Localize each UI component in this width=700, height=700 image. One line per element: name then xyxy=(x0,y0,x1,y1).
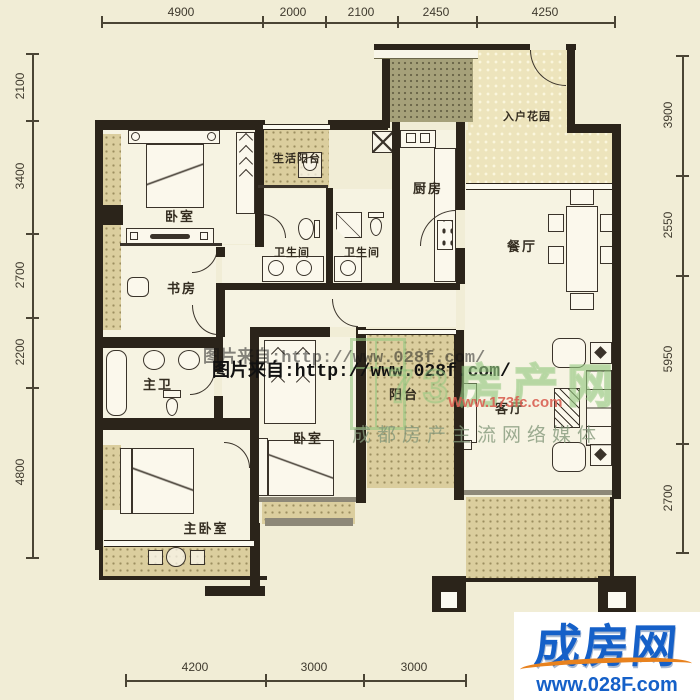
wall xyxy=(95,418,251,430)
master-bath-label: 主卫 xyxy=(136,374,180,393)
terrace-hatch xyxy=(466,497,612,581)
living-rail xyxy=(464,490,614,495)
dining-chair xyxy=(548,246,564,264)
bedroom1-label: 卧室 xyxy=(150,206,210,225)
basin xyxy=(340,260,356,276)
terrace-rail xyxy=(610,497,614,581)
wall xyxy=(456,248,465,284)
dim-left-2: 3400 xyxy=(13,149,27,203)
bay-window-strip3 xyxy=(103,445,121,510)
dim-bottom-1: 4200 xyxy=(168,660,222,674)
window xyxy=(104,540,254,547)
dim-left-5: 4800 xyxy=(13,445,27,499)
bathtub xyxy=(106,350,127,416)
dining-window xyxy=(466,183,612,190)
bath1-label: 卫生间 xyxy=(266,244,318,260)
dim-top-4: 2450 xyxy=(411,5,461,19)
dresser1-knob xyxy=(130,232,138,240)
basin xyxy=(296,260,312,276)
dim-tick xyxy=(465,674,467,687)
dim-tick xyxy=(101,16,103,28)
wall xyxy=(456,122,465,210)
dim-bottom-3: 3000 xyxy=(387,660,441,674)
bed1-body xyxy=(146,144,204,208)
dim-right-3: 5950 xyxy=(661,332,675,386)
bedroom2-label: 卧室 xyxy=(282,428,334,447)
wall xyxy=(478,44,530,50)
bed2-body xyxy=(268,440,334,496)
utility-balcony-label: 生活阳台 xyxy=(266,150,328,166)
dining-chair xyxy=(548,214,564,232)
dresser1-knob xyxy=(200,232,208,240)
dining-label: 餐厅 xyxy=(498,236,546,255)
dim-tick xyxy=(397,16,399,28)
dresser1-mirror xyxy=(150,234,190,239)
dim-top-2: 2000 xyxy=(268,5,318,19)
bay-window-strip2 xyxy=(103,225,121,330)
pillar-notch xyxy=(441,592,457,608)
wall xyxy=(392,122,400,284)
closet1 xyxy=(236,132,255,214)
dim-tick xyxy=(676,443,689,445)
dim-right-4: 2700 xyxy=(661,471,675,525)
wall xyxy=(95,205,123,225)
dim-line-bottom xyxy=(125,680,466,682)
wall xyxy=(382,48,390,128)
kitchen-sink xyxy=(406,133,416,143)
bed1-knob xyxy=(207,132,216,141)
dim-top-3: 2100 xyxy=(336,5,386,19)
floorplan-image: 卧室 书房 主卫 主卧室 卧室 生活阳台 卫生间 卫生间 厨房 入户花园 餐厅 … xyxy=(0,0,700,700)
dim-tick xyxy=(614,16,616,28)
master-bed-body xyxy=(132,448,194,514)
watermark-agency-slogan: 成都房产主流网络媒体 xyxy=(352,420,602,447)
roof-block-hatch xyxy=(390,54,473,122)
dim-tick xyxy=(676,552,689,554)
study-label: 书房 xyxy=(152,278,212,297)
wall-thin xyxy=(120,243,222,246)
wall xyxy=(216,283,225,337)
dim-top-5: 4250 xyxy=(520,5,570,19)
dim-top-1: 4900 xyxy=(156,5,206,19)
wall xyxy=(326,188,333,284)
wall xyxy=(95,120,265,130)
dim-tick xyxy=(363,674,365,687)
site-logo-url: www.028F.com xyxy=(514,674,700,697)
wall-left-main xyxy=(95,122,103,550)
window xyxy=(263,124,330,130)
dim-left-1: 2100 xyxy=(13,59,27,113)
dim-tick xyxy=(262,16,264,28)
dining-table xyxy=(566,206,598,292)
dim-tick xyxy=(125,674,127,687)
dim-tick xyxy=(26,233,39,235)
basin xyxy=(143,350,165,370)
bed2-headboard xyxy=(258,438,268,496)
bay-window-strip1 xyxy=(103,134,121,205)
study-chair xyxy=(127,277,149,297)
dim-tick xyxy=(325,16,327,28)
basin xyxy=(268,260,284,276)
wall xyxy=(223,283,380,290)
bath2-label: 卫生间 xyxy=(336,244,388,260)
kitchen-sink xyxy=(420,133,430,143)
dim-right-2: 2550 xyxy=(661,198,675,252)
sill xyxy=(259,497,357,502)
entry-garden-label: 入户花园 xyxy=(494,108,560,124)
bed1-knob xyxy=(131,132,140,141)
wall xyxy=(567,44,575,132)
dim-tick xyxy=(26,557,39,559)
dining-chair xyxy=(570,188,594,205)
site-logo: 成房网 www.028F.com xyxy=(514,612,700,700)
pillar-notch xyxy=(608,592,626,608)
sitting-table xyxy=(166,547,186,567)
dim-left-3: 2700 xyxy=(13,248,27,302)
dim-tick xyxy=(26,120,39,122)
wall xyxy=(214,396,223,430)
dim-tick xyxy=(676,175,689,177)
dim-line-top xyxy=(101,22,615,24)
wall xyxy=(250,468,259,530)
wall xyxy=(380,283,460,290)
dim-line-left xyxy=(32,53,34,558)
dim-right-1: 3900 xyxy=(661,88,675,142)
window xyxy=(358,329,456,335)
master-bedroom-label: 主卧室 xyxy=(168,518,244,537)
dim-left-4: 2200 xyxy=(13,325,27,379)
dim-tick xyxy=(26,317,39,319)
parapet xyxy=(374,50,478,59)
sill xyxy=(265,518,353,526)
wall xyxy=(205,586,265,596)
wall-right-main xyxy=(612,124,621,499)
wall xyxy=(216,247,225,257)
dim-tick xyxy=(26,387,39,389)
sitting-chair xyxy=(190,550,205,565)
wall xyxy=(250,327,330,337)
flue-duct xyxy=(372,131,394,153)
dim-tick xyxy=(676,275,689,277)
balcony-rail xyxy=(99,576,267,580)
entry-garden-hatch-lower xyxy=(466,130,612,183)
dim-tick xyxy=(26,53,39,55)
basin xyxy=(178,350,200,370)
dim-line-right xyxy=(682,55,684,553)
dim-tick xyxy=(476,16,478,28)
dining-chair xyxy=(570,293,594,310)
hanger-icon xyxy=(238,169,252,183)
kitchen-label: 厨房 xyxy=(402,178,454,197)
dim-tick xyxy=(676,55,689,57)
dim-tick xyxy=(265,674,267,687)
toilet-tank xyxy=(314,220,320,238)
watermark-agency-url: Www.173fc.com xyxy=(448,394,562,411)
dim-bottom-2: 3000 xyxy=(287,660,341,674)
terrace-rail xyxy=(466,578,614,582)
master-bed-headboard xyxy=(120,448,132,514)
wall-thin xyxy=(258,185,328,188)
sitting-chair xyxy=(148,550,163,565)
wall xyxy=(250,428,259,442)
wall xyxy=(328,120,388,130)
